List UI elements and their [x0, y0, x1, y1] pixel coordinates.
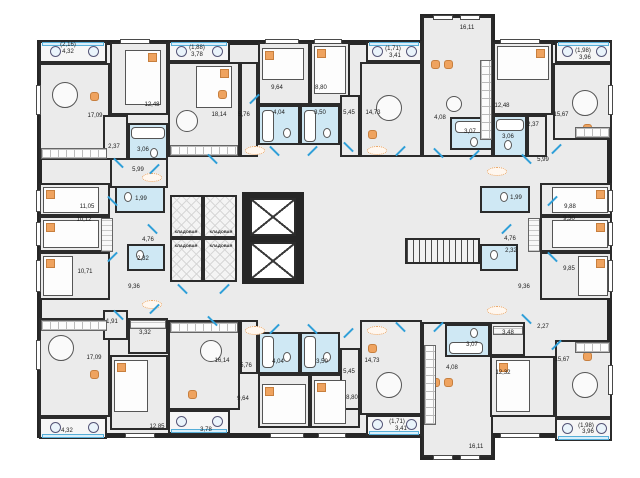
area-label: 3,07 — [464, 129, 476, 135]
area-label: (2,16) — [60, 42, 76, 48]
area-label: 12,85 — [149, 424, 164, 430]
area-label: 1,99 — [135, 196, 147, 202]
area-label: 3,78 — [200, 427, 212, 433]
area-label: 4,76 — [504, 236, 516, 242]
area-label: 11,05 — [80, 204, 95, 210]
area-label: 5,45 — [343, 369, 355, 375]
storage-label: КЛАДОВАЯ — [175, 230, 198, 234]
storage-label: КЛАДОВАЯ — [210, 230, 233, 234]
area-label: 9,85 — [563, 266, 575, 272]
area-label: 2,37 — [108, 144, 120, 150]
area-label: 5,76 — [238, 112, 250, 118]
area-label: 10,71 — [77, 269, 92, 275]
area-label: 5,45 — [343, 110, 355, 116]
area-label: 3,50 — [314, 110, 326, 116]
area-label: 4,04 — [273, 110, 285, 116]
area-label: 4,32 — [61, 428, 73, 434]
area-label: 5,76 — [240, 363, 252, 369]
area-label: 17,09 — [86, 355, 101, 361]
area-labels-layer: (2,16)4,3217,0912,482,373,065,99(1,88)3,… — [0, 0, 640, 478]
floor-plan: (2,16)4,3217,0912,482,373,065,99(1,88)3,… — [0, 0, 640, 478]
area-label: 4,08 — [446, 365, 458, 371]
area-label: 2,32 — [505, 248, 517, 254]
area-label: (1,98) — [575, 48, 591, 54]
area-label: 5,99 — [537, 157, 549, 163]
storage-label: КЛАДОВАЯ — [210, 244, 233, 248]
area-label: 3,06 — [502, 134, 514, 140]
storage-label: КЛАДОВАЯ — [175, 244, 198, 248]
area-label: 16,11 — [460, 25, 475, 31]
area-label: 14,73 — [365, 110, 380, 116]
area-label: 9,64 — [271, 85, 283, 91]
area-label: 8,80 — [346, 395, 358, 401]
area-label: 3,41 — [389, 53, 401, 59]
area-label: 3,96 — [579, 55, 591, 61]
area-label: 4,32 — [62, 49, 74, 55]
area-label: 3,96 — [582, 429, 594, 435]
area-label: 3,48 — [502, 330, 514, 336]
area-label: 16,11 — [469, 444, 484, 450]
area-label: 1,99 — [510, 195, 522, 201]
area-label: 3,41 — [395, 426, 407, 432]
area-label: 1,91 — [106, 319, 118, 325]
area-label: 2,32 — [137, 256, 149, 262]
area-label: 12,32 — [495, 370, 510, 376]
area-label: 9,36 — [518, 284, 530, 290]
area-label: 9,30 — [563, 216, 575, 222]
area-label: 17,09 — [87, 113, 102, 119]
area-label: 14,73 — [364, 358, 379, 364]
area-label: 18,14 — [211, 112, 226, 118]
area-label: 5,99 — [132, 167, 144, 173]
area-label: 15,67 — [554, 357, 569, 363]
area-label: (1,71) — [389, 419, 405, 425]
area-label: 3,06 — [137, 147, 149, 153]
area-label: 3,50 — [316, 359, 328, 365]
area-label: 15,67 — [553, 112, 568, 118]
area-label: 3,78 — [191, 52, 203, 58]
area-label: 9,64 — [237, 396, 249, 402]
area-label: 16,14 — [214, 358, 229, 364]
area-label: (1,88) — [189, 45, 205, 51]
area-label: 2,37 — [527, 122, 539, 128]
area-label: 3,07 — [466, 342, 478, 348]
area-label: 12,48 — [494, 103, 509, 109]
area-label: (1,71) — [385, 46, 401, 52]
area-label: 9,88 — [564, 204, 576, 210]
area-label: 8,80 — [315, 85, 327, 91]
area-label: 4,08 — [434, 115, 446, 121]
area-label: 2,27 — [537, 324, 549, 330]
area-label: 4,04 — [272, 359, 284, 365]
area-label: 12,48 — [144, 102, 159, 108]
area-label: 10,12 — [76, 217, 91, 223]
area-label: 9,36 — [128, 284, 140, 290]
area-label: 3,32 — [139, 330, 151, 336]
area-label: 4,76 — [142, 237, 154, 243]
